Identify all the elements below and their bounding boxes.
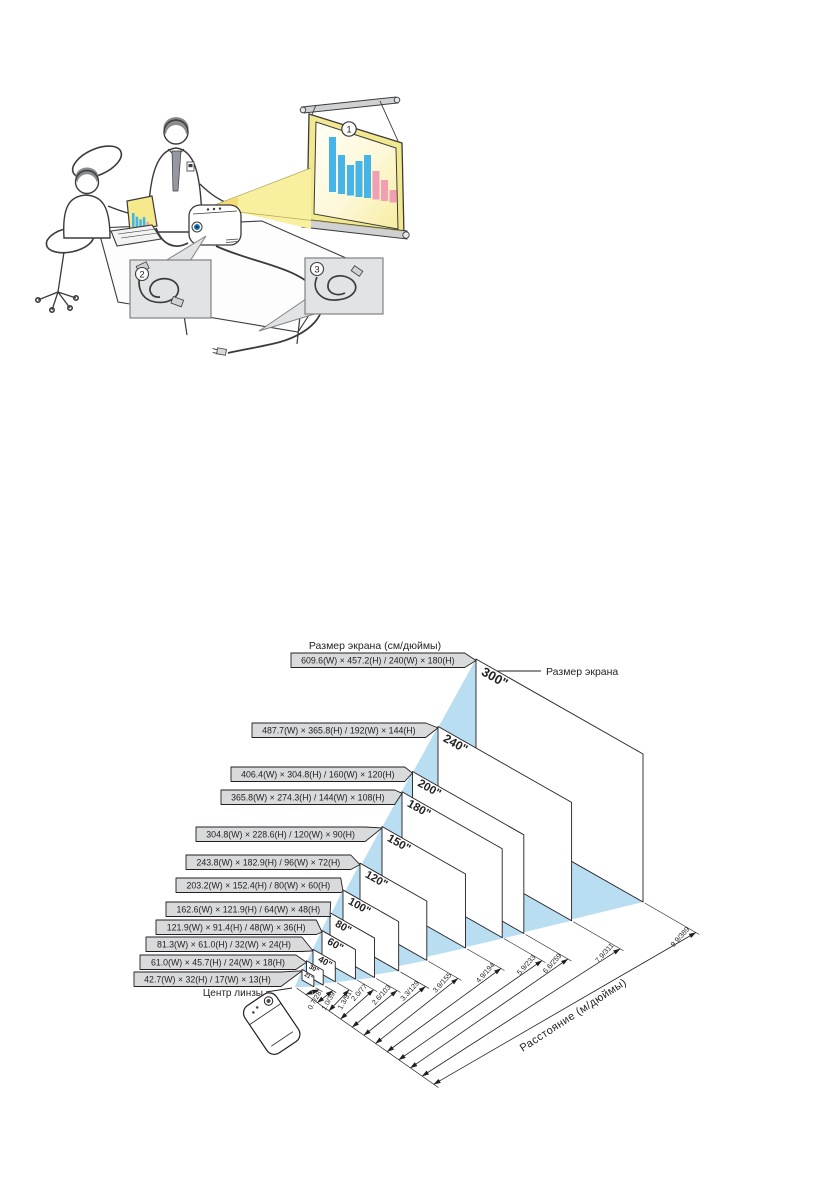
diagram-screens: 300"240"200"180"150"120"100"80"60"40"30"…: [295, 659, 643, 987]
laptop-chart-bar: [132, 213, 135, 227]
laptop-chart-bar: [136, 217, 139, 228]
dimension-box-label: 61.0(W) × 45.7(H) / 24(W) × 18(H): [151, 957, 285, 967]
dimension-box-label: 121.9(W) × 91.4(H) / 48(W) × 36(H): [167, 922, 306, 932]
dimension-box-label: 81.3(W) × 61.0(H) / 32(W) × 24(H): [157, 939, 291, 949]
distance-label: 6.6/259: [541, 951, 564, 975]
lens-center-callout-line: [266, 988, 292, 992]
distance-baseline: [297, 988, 439, 1087]
distance-label: 4.9/194: [474, 961, 497, 985]
lens-center-label: Центр линзы: [203, 988, 263, 999]
callout-3-number: 3: [314, 264, 319, 275]
chart-bar: [356, 161, 363, 197]
dimension-box-label: 42.7(W) × 32(H) / 17(W) × 13(H): [144, 974, 271, 984]
dimension-box-label: 243.8(W) × 182.9(H) / 96(W) × 72(H): [197, 857, 341, 867]
dimension-box-label: 487.7(W) × 365.8(H) / 192(W) × 144(H): [262, 725, 416, 735]
chart-bar: [347, 165, 354, 196]
chart-bar: [390, 190, 397, 203]
dimension-box-label: 203.2(W) × 152.4(H) / 80(W) × 60(H): [187, 880, 331, 890]
callout-1-number: 1: [346, 125, 351, 136]
screen-support-bar: [302, 97, 398, 113]
dimension-box-label: 609.6(W) × 457.2(H) / 240(W) × 180(H): [301, 655, 455, 665]
power-plug: [212, 347, 227, 355]
dimension-box-label: 365.8(W) × 274.3(H) / 144(W) × 108(H): [231, 792, 385, 802]
distance-axis-label: Расстояние (м/дюймы): [518, 976, 629, 1054]
projector-illustration: [240, 989, 303, 1058]
diagram-title: Размер экрана (см/дюймы): [309, 640, 441, 652]
chart-bar: [329, 137, 336, 192]
distance-label: 5.9/233: [515, 953, 538, 977]
scene-illustration: 1: [36, 97, 409, 355]
chart-bar: [338, 155, 345, 194]
screen-size-callout-label: Размер экрана: [546, 666, 618, 678]
projector-device: [189, 205, 241, 245]
extension-line: [573, 922, 623, 951]
projection-screen: 1: [300, 97, 409, 239]
callout-2-number: 2: [139, 269, 144, 280]
dimension-box-label: 162.6(W) × 121.9(H) / 64(W) × 48(H): [177, 904, 321, 914]
extension-line: [645, 903, 700, 935]
laptop: [111, 196, 161, 246]
chart-bar: [364, 155, 371, 198]
distance-label: 7.9/311: [593, 941, 615, 964]
dimension-box-label: 406.4(W) × 304.8(H) / 160(W) × 120(H): [241, 769, 395, 779]
distance-label: 1.3/51: [336, 989, 354, 1011]
chart-bar: [381, 180, 388, 201]
dimension-box-label: 304.8(W) × 228.6(H) / 120(W) × 90(H): [206, 829, 355, 839]
dimension-line: [410, 959, 568, 1068]
projection-diagram: 300"240"200"180"150"120"100"80"60"40"30"…: [134, 640, 699, 1088]
page-canvas: 1: [0, 0, 839, 1191]
manual-page: 1: [0, 0, 839, 1191]
chart-bar: [373, 171, 380, 200]
